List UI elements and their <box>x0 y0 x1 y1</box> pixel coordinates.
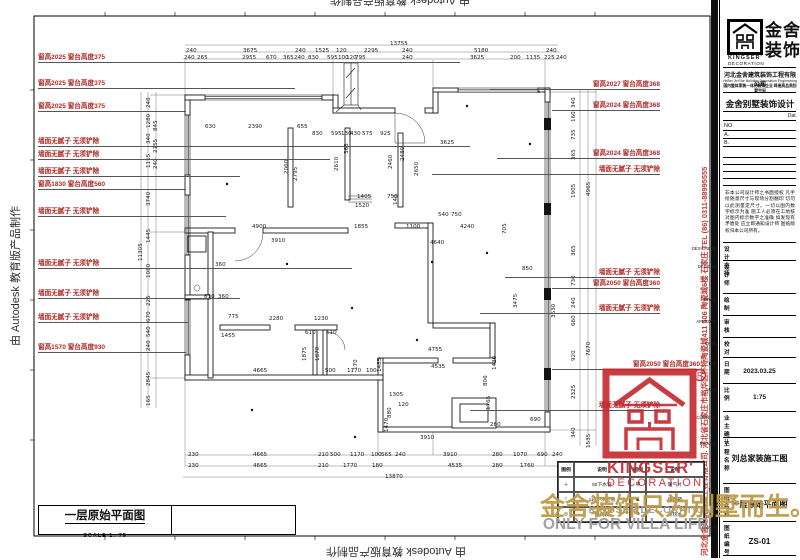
divider-bar <box>711 0 718 558</box>
wall-annotation: 窗高1830 窗台高度560 <box>38 180 186 190</box>
gold-slogan: 金舍装饰只为别墅而生。 <box>540 487 800 523</box>
kingser-stamp: R KINGSER' DECORATION <box>598 366 710 494</box>
program-title: 金舍别墅装饰设计 <box>722 98 798 110</box>
field-label-en: DESIGNE <box>698 264 717 269</box>
wall-annotation: 窗高2024 窗台高度368 <box>552 101 660 111</box>
divider-line <box>723 411 796 412</box>
wall-annotation: 墙面无腻子 无须铲除 <box>505 268 660 278</box>
divider-line <box>723 67 796 68</box>
legend-header-cell: 图例 <box>558 462 574 477</box>
field-label: 校对 <box>724 340 730 356</box>
divider-line <box>723 483 796 484</box>
divider-line <box>723 383 796 384</box>
field-value: 刘总家装施工图 <box>723 453 796 464</box>
stamp-reg-letter: R <box>697 371 703 380</box>
divider-line <box>723 164 796 165</box>
divider-line <box>723 146 796 147</box>
stamp-square-icon <box>606 372 693 455</box>
divider-line <box>723 157 796 158</box>
divider-line <box>723 315 796 316</box>
divider-line <box>723 111 796 112</box>
wall-annotation: 墙面无腻子 无须铲除 <box>38 289 240 299</box>
field-value: ZS-01 <box>723 537 796 546</box>
brand-en-2: DECORATION <box>728 61 764 66</box>
divider-line <box>723 337 796 338</box>
wall-annotation: 窗高2027 窗台高度368 <box>490 80 660 90</box>
divider-line <box>723 260 796 261</box>
brand-cn-2: 装饰 <box>765 36 800 61</box>
view-title: 一层原始平面图 <box>65 510 146 524</box>
view-label-cell: 一层原始平面图 SCALE 1: 75 <box>39 506 172 534</box>
divider-line <box>723 357 796 358</box>
wall-annotation: 墙面无腻子 无须铲除 <box>38 150 330 160</box>
divider-line <box>723 185 796 186</box>
wall-annotation: 窗高2025 窗台高度375 <box>38 53 460 63</box>
field-label-en: DWG.N <box>702 525 717 530</box>
field-label: 设计师 <box>724 263 730 287</box>
divider-line <box>723 138 796 139</box>
field-value: 1:75 <box>723 394 796 401</box>
field-label: 绘制 <box>724 296 730 312</box>
view-label-empty-cell <box>172 506 295 534</box>
wall-annotation: 窗高2024 窗台高度368 <box>497 149 660 159</box>
divider-line <box>723 92 796 93</box>
wall-annotation: 窗高2025 窗台高度375 <box>38 102 186 112</box>
wall-annotation: 墙面无腻子 无须铲除 <box>38 167 240 177</box>
divider-line <box>723 120 796 121</box>
title-block: 金舍 装饰 KINGSER' DECORATION 河北金舍建筑装饰工程有限公司… <box>719 0 800 558</box>
divider-line <box>723 437 796 438</box>
field-label-en: CHEC <box>705 341 717 346</box>
divider-line <box>723 242 796 243</box>
divider-line <box>723 178 796 179</box>
field-label-en: DRAW <box>704 297 717 302</box>
divider-line <box>723 293 796 294</box>
wall-annotation: 窗高2050 窗台高度360 <box>552 279 660 289</box>
field-label-en: DESIGNERS <box>692 246 717 251</box>
no-label: NO. <box>724 123 734 129</box>
date-small-label: Dat. <box>788 113 797 119</box>
view-label-box: 一层原始平面图 SCALE 1: 75 <box>38 505 296 535</box>
wall-annotation: 墙面无腻子 无须铲除 <box>38 207 226 217</box>
divider-line <box>723 130 796 131</box>
kingser-logo-icon <box>727 19 763 55</box>
view-scale: SCALE 1: 75 <box>83 533 127 539</box>
divider-line <box>723 171 796 172</box>
field-label: 审核 <box>724 318 730 334</box>
wall-annotation: 墙面无腻子 无须铲除 <box>38 313 188 323</box>
divider-line <box>723 555 796 556</box>
wall-annotation: 墙面无腻子 无须铲除 <box>38 259 352 269</box>
wall-annotation: 墙面无腻子 无须铲除 <box>480 304 660 314</box>
wall-annotation: 窗高1570 窗台高度930 <box>38 343 186 353</box>
wall-annotation: 窗高2025 窗台高度375 <box>38 79 295 89</box>
stamp-text-1: KINGSER' <box>607 459 694 477</box>
field-value: 2023.03.25 <box>723 368 796 375</box>
disclaimer-note: 非本公司设计师之书面授权 凡手绘随意尺寸与现场分割翻印 切勿以此测量定尺寸。一切… <box>725 190 795 234</box>
wall-annotation: 墙面无腻子 无须铲除 <box>432 165 660 175</box>
cad-floorplan-sheet: { "watermarks": { "autodesk": "由 Autodes… <box>0 0 800 558</box>
field-label-en: APPROVE <box>696 319 717 324</box>
wall-annotation: 墙面无腻子 无须铲除 <box>38 137 470 147</box>
